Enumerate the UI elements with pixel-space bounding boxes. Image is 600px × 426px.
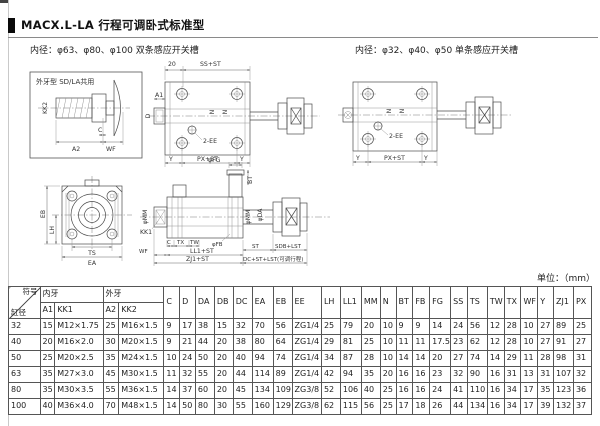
table-cell: 10 <box>380 351 396 367</box>
table-cell: 94 <box>252 351 273 367</box>
table-cell: 26 <box>430 399 451 415</box>
table-cell: 16 <box>487 367 504 383</box>
dim-label-c: C <box>98 127 102 134</box>
table-cell: 28 <box>504 335 521 351</box>
table-cell: 10 <box>380 319 396 335</box>
dim-label-2ee: 2-EE <box>389 133 403 140</box>
table-cell: 14 <box>487 351 504 367</box>
table-cell: ZG1/4 <box>292 367 321 383</box>
table-cell: 18 <box>413 399 430 415</box>
table-cell: 32 <box>451 367 468 383</box>
table-cell: 20 <box>380 367 396 383</box>
title-accent-bar <box>8 18 15 33</box>
col-header-DA: DA <box>195 287 214 319</box>
subtitle-small-bore: 内径：φ32、φ40、φ50 单条感应开关槽 <box>355 43 518 56</box>
dim-label-lh: LH <box>49 226 56 234</box>
table-cell: 129 <box>273 399 292 415</box>
spec-table-head: 符号缸径内牙外牙CDDADBDCEAEBEELHLL1MMNBTFBFGSSTS… <box>9 287 592 319</box>
table-cell: 27 <box>573 335 591 351</box>
table-cell: 9 <box>164 319 180 335</box>
table-cell: 17.5 <box>430 335 451 351</box>
table-cell: 56 <box>273 319 292 335</box>
table-cell: 15 <box>214 319 233 335</box>
table-cell: 91 <box>554 335 574 351</box>
sub-header-A1: A1 <box>40 303 55 319</box>
table-cell: 107 <box>554 367 574 383</box>
table-cell: 9 <box>396 319 413 335</box>
table-cell: 40 <box>361 383 380 399</box>
table-cell: M27×3.0 <box>55 367 103 383</box>
bore-cell: 100 <box>9 399 41 415</box>
table-row: 10040M36×4.070M48×1.51450803055160129ZG3… <box>9 399 592 415</box>
table-cell: 14 <box>164 383 180 399</box>
table-cell: 10 <box>521 335 538 351</box>
table-cell: 27 <box>538 319 554 335</box>
table-cell: 110 <box>467 383 487 399</box>
table-cell: 24 <box>430 383 451 399</box>
table-cell: 11 <box>413 335 430 351</box>
col-header-ZJ1: ZJ1 <box>554 287 574 319</box>
table-row: 4020M16×2.030M20×1.59214420388064ZG1/429… <box>9 335 592 351</box>
dim-label-tw: TW <box>189 240 199 246</box>
table-cell: 44 <box>233 367 252 383</box>
table-cell: 14 <box>430 319 451 335</box>
table-cell: ZG1/4 <box>292 319 321 335</box>
dim-label-bt: BT <box>247 176 254 184</box>
dim-label-2ee: 2-EE <box>203 138 217 145</box>
table-cell: 52 <box>321 383 340 399</box>
table-cell: 37 <box>573 399 591 415</box>
col-header-DB: DB <box>214 287 233 319</box>
table-cell: 74 <box>467 351 487 367</box>
table-cell: ZG3/8 <box>292 383 321 399</box>
cylinder-drawing-large-bore: A1 D N N 2-EE 20 SS+ST Y PX+ST Y <box>145 61 320 167</box>
port-boss <box>173 185 186 197</box>
col-header-N: N <box>380 287 396 319</box>
col-header-EB: EB <box>273 287 292 319</box>
section-title-bar: MACX.L-LA 行程可调卧式标准型 <box>8 17 598 38</box>
table-cell: 23 <box>451 335 468 351</box>
dim-label-zj1-st: ZJ1+ST <box>186 256 209 263</box>
table-cell: 25 <box>103 319 119 335</box>
table-cell: 16 <box>413 383 430 399</box>
table-cell: 44 <box>195 335 214 351</box>
table-cell: 38 <box>233 335 252 351</box>
table-cell: 70 <box>252 319 273 335</box>
col-header-C: C <box>164 287 180 319</box>
table-cell: 41 <box>451 383 468 399</box>
table-cell: 160 <box>252 399 273 415</box>
table-cell: 34 <box>321 351 340 367</box>
dim-label-mm: φMM <box>142 210 149 225</box>
table-cell: 20 <box>361 319 380 335</box>
table-cell: 20 <box>214 367 233 383</box>
dim-label-a2: A2 <box>72 146 80 153</box>
dim-label-wf: WF <box>106 146 116 153</box>
table-cell: 12 <box>487 319 504 335</box>
table-cell: 35 <box>361 367 380 383</box>
inset-drawing: 外牙型 SD/LA共用 KK2 C A2 WF <box>30 72 142 158</box>
table-cell: 9 <box>413 319 430 335</box>
table-cell: 23 <box>430 367 451 383</box>
table-cell: 37 <box>180 383 196 399</box>
table-cell: 21 <box>180 335 196 351</box>
dim-label-dc-st-lst: DC+ST+LST(可调行程) <box>243 255 303 263</box>
table-cell: 20 <box>214 335 233 351</box>
table-cell: 56 <box>467 319 487 335</box>
dim-label-n1: N <box>209 109 216 114</box>
table-cell: 70 <box>103 399 119 415</box>
dim-label-ea: EA <box>88 260 97 267</box>
col-header-EA: EA <box>252 287 273 319</box>
table-cell: 25 <box>321 319 340 335</box>
group-header: 外牙 <box>103 287 164 303</box>
table-cell: 32 <box>233 319 252 335</box>
dim-label-mm2: φMM <box>245 210 252 225</box>
col-header-D: D <box>180 287 196 319</box>
dim-label-eb: EB <box>40 210 47 218</box>
table-cell: 29 <box>321 335 340 351</box>
table-row: 6335M27×3.045M30×1.5113255204411489ZG1/4… <box>9 367 592 383</box>
table-cell: M36×1.5 <box>119 383 164 399</box>
table-cell: M16×2.0 <box>55 335 103 351</box>
table-cell: 42 <box>321 367 340 383</box>
table-cell: 14 <box>396 351 413 367</box>
table-cell: 50 <box>195 351 214 367</box>
dim-label-y-left: Y <box>355 155 360 162</box>
table-cell: 55 <box>195 367 214 383</box>
table-cell: 50 <box>180 399 196 415</box>
table-cell: M48×1.5 <box>119 399 164 415</box>
table-cell: 40 <box>233 351 252 367</box>
table-cell: 20 <box>214 351 233 367</box>
inset-title: 外牙型 SD/LA共用 <box>36 77 94 86</box>
cylinder-body <box>353 82 437 151</box>
corner-label-bore: 缸径 <box>11 309 26 317</box>
table-cell: 80 <box>252 335 273 351</box>
table-cell: 16 <box>396 383 413 399</box>
dim-label-n1: N <box>386 108 393 113</box>
table-cell: M30×1.5 <box>119 367 164 383</box>
col-header-TS: TS <box>467 287 487 319</box>
spec-table: 符号缸径内牙外牙CDDADBDCEAEBEELHLL1MMNBTFBFGSSTS… <box>8 286 592 415</box>
bore-cell: 63 <box>9 367 41 383</box>
col-header-Y: Y <box>538 287 554 319</box>
table-cell: 60 <box>195 383 214 399</box>
table-cell: 132 <box>554 399 574 415</box>
table-cell: M20×2.5 <box>55 351 103 367</box>
adjust-tower <box>229 174 242 197</box>
table-cell: 17 <box>521 399 538 415</box>
table-cell: 32 <box>573 367 591 383</box>
table-cell: 20 <box>430 351 451 367</box>
table-cell: 79 <box>340 319 361 335</box>
col-header-DC: DC <box>233 287 252 319</box>
table-cell: 123 <box>554 383 574 399</box>
table-cell: 32 <box>180 367 196 383</box>
col-header-LH: LH <box>321 287 340 319</box>
table-cell: 34 <box>504 399 521 415</box>
table-cell: 10 <box>521 319 538 335</box>
corner-label-symbol: 符号 <box>23 288 38 296</box>
table-cell: 106 <box>340 383 361 399</box>
unit-label: 单位：（mm） <box>537 271 595 284</box>
table-cell: 13 <box>521 367 538 383</box>
table-cell: 17 <box>180 319 196 335</box>
col-header-BT: BT <box>396 287 413 319</box>
table-cell: 38 <box>195 319 214 335</box>
bore-cell: 50 <box>9 351 41 367</box>
table-cell: 45 <box>233 383 252 399</box>
table-cell: 134 <box>252 383 273 399</box>
table-cell: 55 <box>103 383 119 399</box>
bore-cell: 40 <box>9 335 41 351</box>
page-corner-mark <box>0 0 8 3</box>
table-cell: 31 <box>504 367 521 383</box>
table-cell: 25 <box>361 335 380 351</box>
table-cell: 16 <box>413 367 430 383</box>
cylinder-drawing-small-bore: N N 2-EE Y PX+ST Y <box>338 82 512 166</box>
table-cell: 39 <box>538 399 554 415</box>
table-cell: 27 <box>451 351 468 367</box>
stroke-adjuster-knob <box>466 97 501 134</box>
dim-label-a1: A1 <box>155 92 163 99</box>
table-cell: 29 <box>504 351 521 367</box>
table-cell: 25 <box>380 399 396 415</box>
dim-label-y-right: Y <box>239 156 244 163</box>
table-cell: 115 <box>340 399 361 415</box>
table-cell: 28 <box>504 319 521 335</box>
table-cell: 25 <box>573 319 591 335</box>
table-cell: 12 <box>487 335 504 351</box>
page-title: MACX.L-LA 行程可调卧式标准型 <box>21 17 205 33</box>
table-cell: ZG1/4 <box>292 351 321 367</box>
table-cell: 10 <box>164 351 180 367</box>
table-cell: 17 <box>521 383 538 399</box>
group-header: 内牙 <box>40 287 103 303</box>
table-cell: 109 <box>273 383 292 399</box>
table-cell: 30 <box>214 399 233 415</box>
table-cell: 80 <box>195 399 214 415</box>
table-row: 3215M12×1.7525M16×1.59173815327056ZG1/42… <box>9 319 592 335</box>
dim-label-n2: N <box>399 108 406 113</box>
table-cell: 9 <box>164 335 180 351</box>
sub-header-KK2: KK2 <box>119 303 164 319</box>
technical-drawing-svg: 外牙型 SD/LA共用 KK2 C A2 WF <box>0 56 600 268</box>
table-cell: M24×1.5 <box>119 351 164 367</box>
bore-cell: 80 <box>9 383 41 399</box>
table-cell: 15 <box>40 319 55 335</box>
table-cell: 24 <box>451 319 468 335</box>
table-cell: M36×4.0 <box>55 399 103 415</box>
dim-label-y-right: Y <box>423 155 428 162</box>
table-cell: 20 <box>214 383 233 399</box>
table-cell: 25 <box>380 383 396 399</box>
table-cell: M20×1.5 <box>119 335 164 351</box>
table-cell: 94 <box>340 367 361 383</box>
col-header-WF: WF <box>521 287 538 319</box>
col-header-FB: FB <box>413 287 430 319</box>
dim-label-st: ST <box>252 244 259 250</box>
table-cell: 34 <box>504 383 521 399</box>
col-header-SS: SS <box>451 287 468 319</box>
dim-label-px-st: PX+ST <box>384 155 405 162</box>
spec-table-body: 3215M12×1.7525M16×1.59173815327056ZG1/42… <box>9 319 592 415</box>
dim-label-y-left: Y <box>168 156 173 163</box>
table-cell: 74 <box>273 351 292 367</box>
bore-cell: 32 <box>9 319 41 335</box>
dim-label-da: φDA <box>257 208 264 222</box>
dim-label-ss-st: SS+ST <box>200 61 221 68</box>
table-cell: M30×3.5 <box>55 383 103 399</box>
table-cell: 11 <box>396 335 413 351</box>
table-cell: 30 <box>103 335 119 351</box>
side-view-drawing: φFG BT φMM KK1 φMM φDA C TX TW φFB <box>139 157 330 266</box>
table-cell: 16 <box>487 399 504 415</box>
table-cell: 87 <box>340 351 361 367</box>
dim-label-c: C <box>167 240 171 246</box>
dimension-table-wrap: 符号缸径内牙外牙CDDADBDCEAEBEELHLL1MMNBTFBFGSSTS… <box>8 286 592 415</box>
table-cell: 17 <box>396 399 413 415</box>
table-cell: 98 <box>554 351 574 367</box>
table-cell: 16 <box>396 367 413 383</box>
table-cell: 89 <box>554 319 574 335</box>
table-cell: 20 <box>40 335 55 351</box>
col-header-MM: MM <box>361 287 380 319</box>
dim-label-d: D <box>145 113 152 118</box>
table-cell: 35 <box>40 383 55 399</box>
table-cell: 25 <box>40 351 55 367</box>
table-cell: 45 <box>103 367 119 383</box>
table-cell: ZG1/4 <box>292 335 321 351</box>
table-cell: 28 <box>361 351 380 367</box>
table-cell: 11 <box>521 351 538 367</box>
table-cell: 81 <box>340 335 361 351</box>
corner-cell: 符号缸径 <box>9 287 41 319</box>
table-cell: 40 <box>40 399 55 415</box>
col-header-FG: FG <box>430 287 451 319</box>
table-cell: 35 <box>103 351 119 367</box>
end-view-drawing: EB LH TS EA <box>40 176 132 267</box>
table-cell: 35 <box>538 383 554 399</box>
table-cell: 27 <box>538 335 554 351</box>
table-cell: 14 <box>164 399 180 415</box>
table-row: 5025M20×2.535M24×1.510245020409474ZG1/43… <box>9 351 592 367</box>
col-header-TX: TX <box>504 287 521 319</box>
table-cell: M12×1.75 <box>55 319 103 335</box>
table-cell: 14 <box>413 351 430 367</box>
table-cell: ZG3/8 <box>292 399 321 415</box>
table-cell: 114 <box>252 367 273 383</box>
dim-label-kk1: KK1 <box>140 229 152 236</box>
table-cell: 10 <box>380 335 396 351</box>
dim-label-wf: WF <box>139 249 148 255</box>
table-row: 8035M30×3.555M36×1.51437602045134109ZG3/… <box>9 383 592 399</box>
table-cell: 31 <box>538 367 554 383</box>
dim-label-n2: N <box>222 109 229 114</box>
table-cell: 62 <box>321 399 340 415</box>
sub-header-KK1: KK1 <box>55 303 103 319</box>
col-header-TW: TW <box>487 287 504 319</box>
table-cell: 36 <box>573 383 591 399</box>
table-cell: 134 <box>467 399 487 415</box>
table-cell: 31 <box>573 351 591 367</box>
dim-label-ll1-st: LL1+ST <box>190 248 214 255</box>
table-cell: 11 <box>164 367 180 383</box>
table-cell: M16×1.5 <box>119 319 164 335</box>
table-cell: 62 <box>467 335 487 351</box>
table-cell: 56 <box>361 399 380 415</box>
col-header-EE: EE <box>292 287 321 319</box>
dim-label-kk2: KK2 <box>42 102 49 114</box>
header-row-1: 符号缸径内牙外牙CDDADBDCEAEBEELHLL1MMNBTFBFGSSTS… <box>9 287 592 303</box>
subtitle-large-bore: 内径：φ63、φ80、φ100 双条感应开关槽 <box>30 43 199 56</box>
col-header-PX: PX <box>573 287 591 319</box>
dim-label-tx: TX <box>176 240 184 246</box>
dim-label-ts: TS <box>87 250 96 257</box>
table-cell: 16 <box>487 383 504 399</box>
dim-label-20: 20 <box>168 61 176 68</box>
sub-header-A2: A2 <box>103 303 119 319</box>
table-cell: 55 <box>233 399 252 415</box>
body-outline <box>167 197 243 238</box>
col-header-LL1: LL1 <box>340 287 361 319</box>
dim-label-fg: φFG <box>208 157 221 164</box>
dim-label-sdb-lst: SDB+LST <box>275 244 302 250</box>
table-cell: 35 <box>40 367 55 383</box>
table-cell: 44 <box>451 399 468 415</box>
table-cell: 24 <box>180 351 196 367</box>
table-cell: 28 <box>538 351 554 367</box>
table-cell: 90 <box>467 367 487 383</box>
table-cell: 89 <box>273 367 292 383</box>
technical-drawings: 外牙型 SD/LA共用 KK2 C A2 WF <box>0 56 600 268</box>
table-cell: 64 <box>273 335 292 351</box>
